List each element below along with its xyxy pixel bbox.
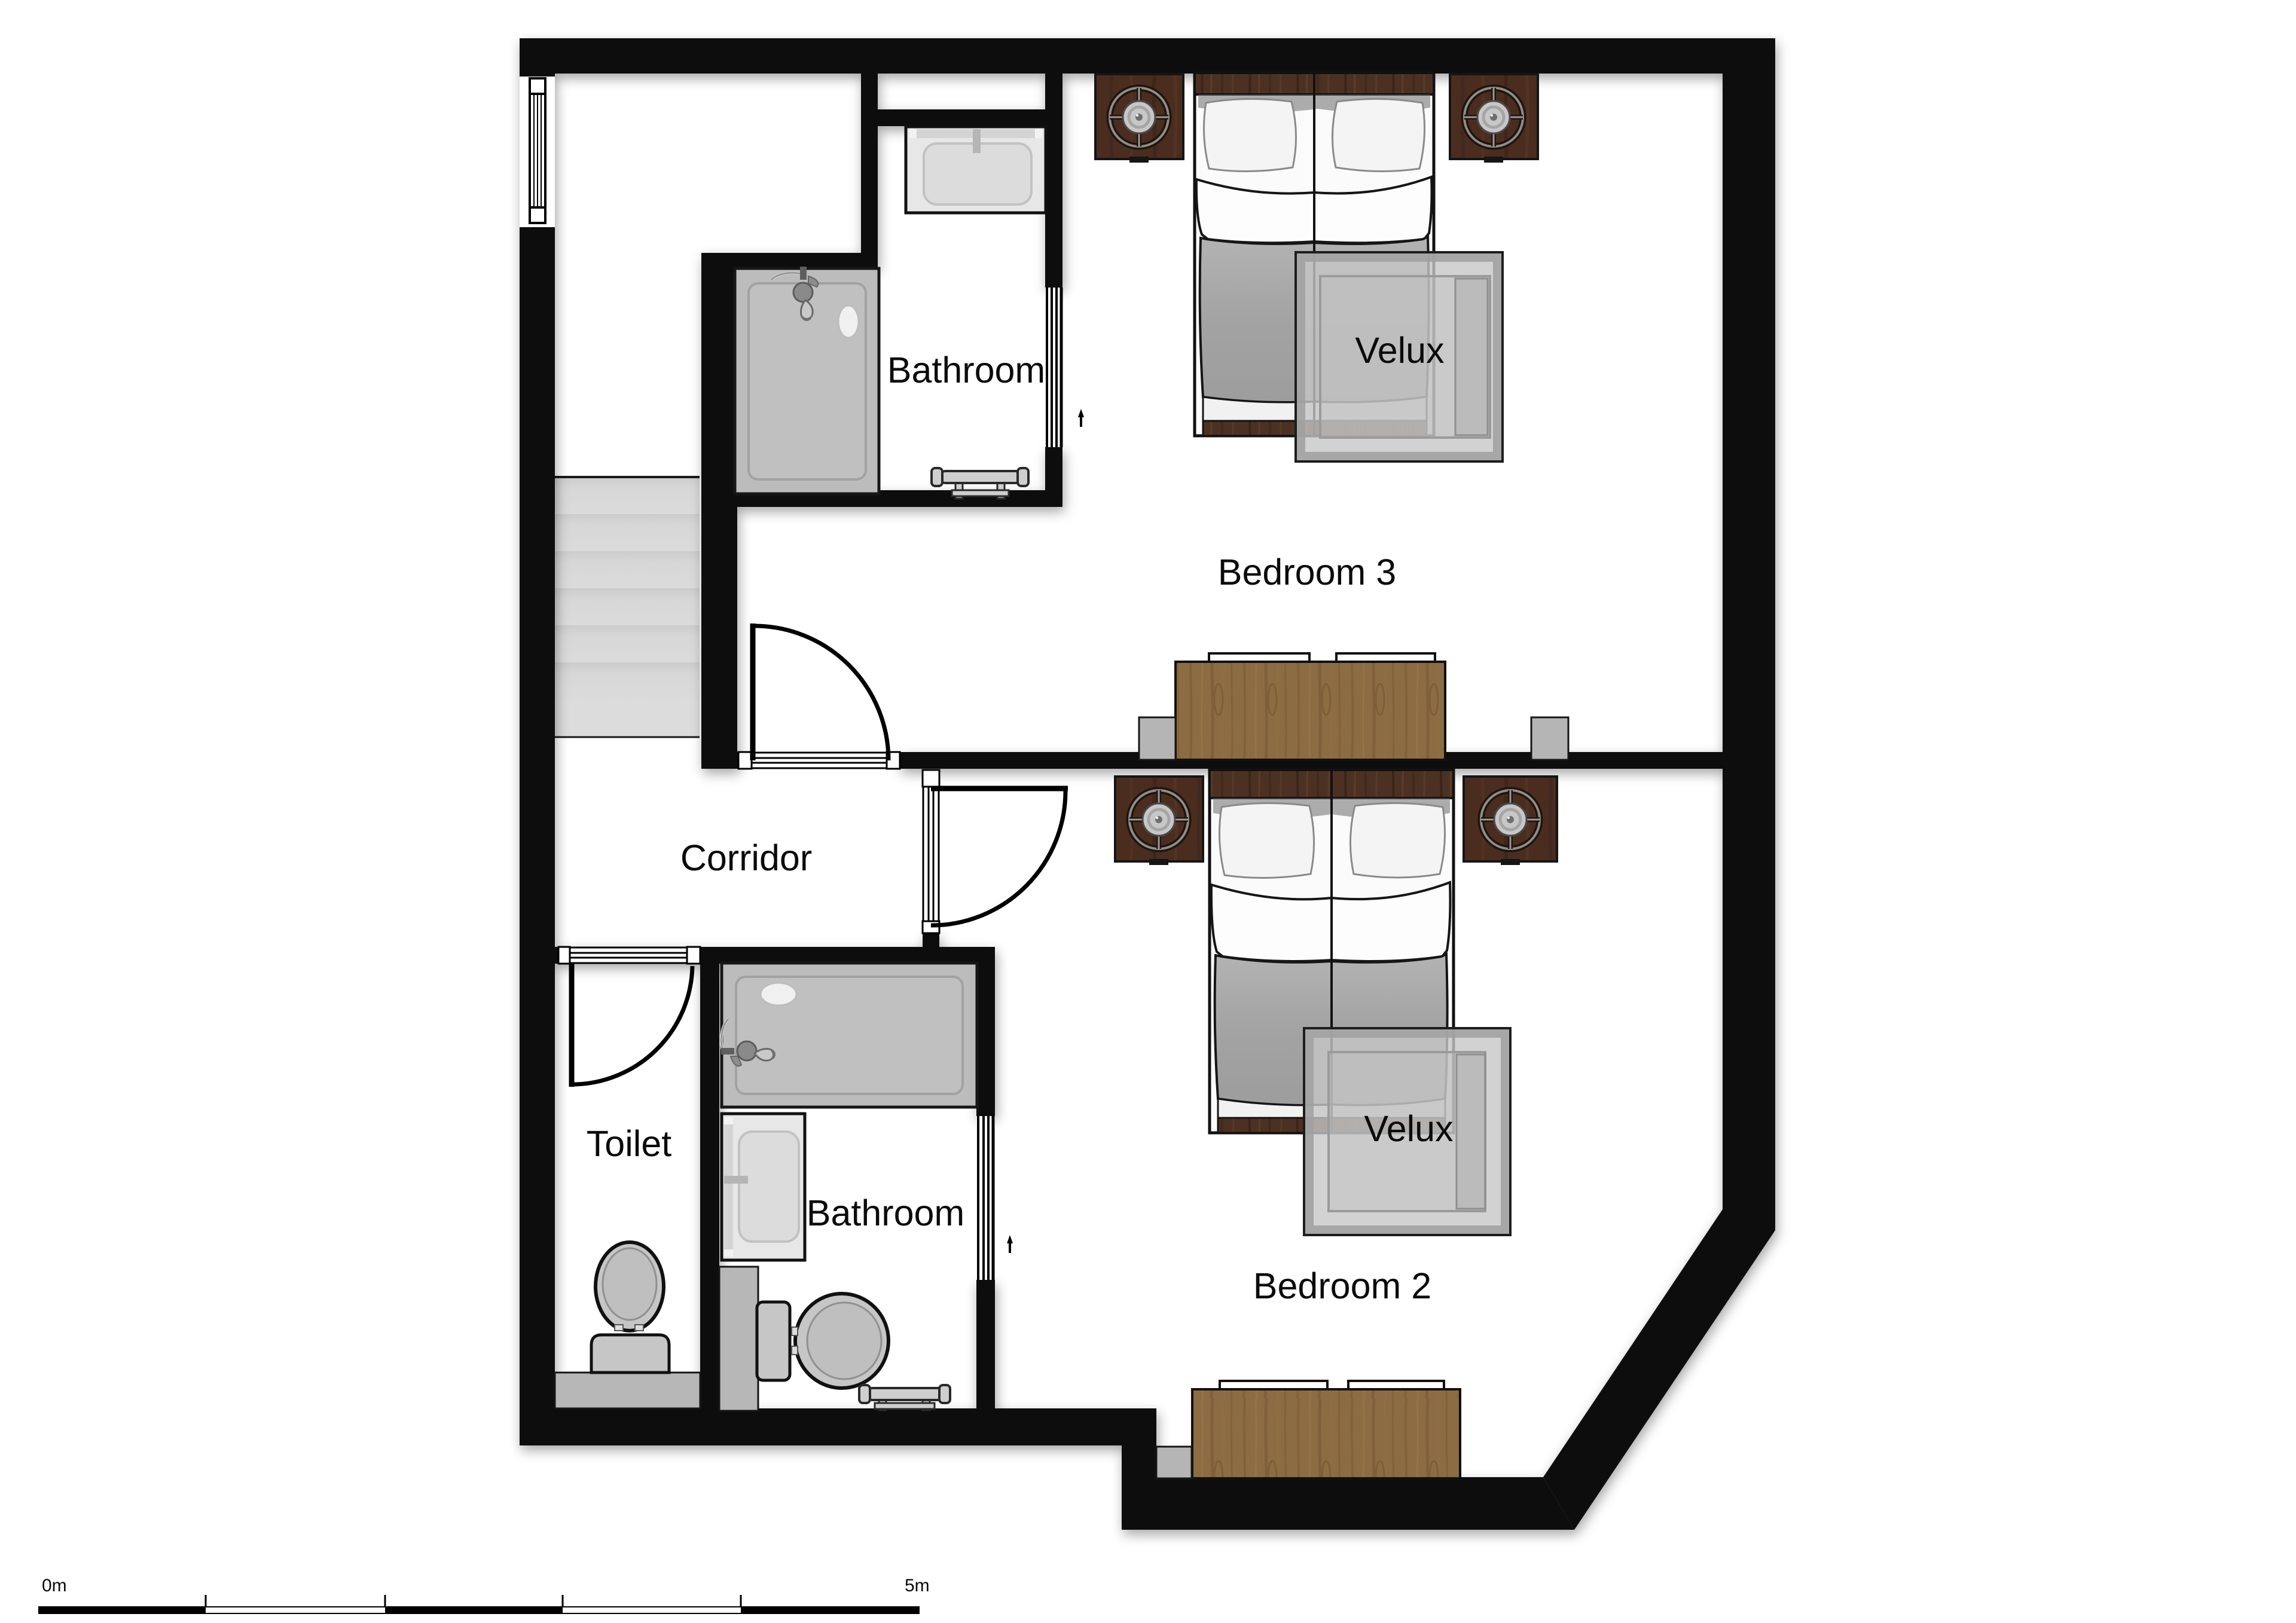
svg-text:Bathroom: Bathroom	[887, 350, 1045, 390]
svg-text:Velux: Velux	[1355, 330, 1444, 371]
svg-text:Velux: Velux	[1364, 1108, 1453, 1149]
svg-text:5m: 5m	[905, 1576, 930, 1596]
svg-text:Corridor: Corridor	[680, 838, 812, 878]
svg-text:Toilet: Toilet	[587, 1123, 671, 1164]
svg-text:Bedroom 3: Bedroom 3	[1218, 552, 1396, 592]
svg-text:Bathroom: Bathroom	[807, 1193, 964, 1233]
svg-text:Bedroom 2: Bedroom 2	[1253, 1266, 1431, 1306]
svg-text:0m: 0m	[42, 1576, 67, 1596]
